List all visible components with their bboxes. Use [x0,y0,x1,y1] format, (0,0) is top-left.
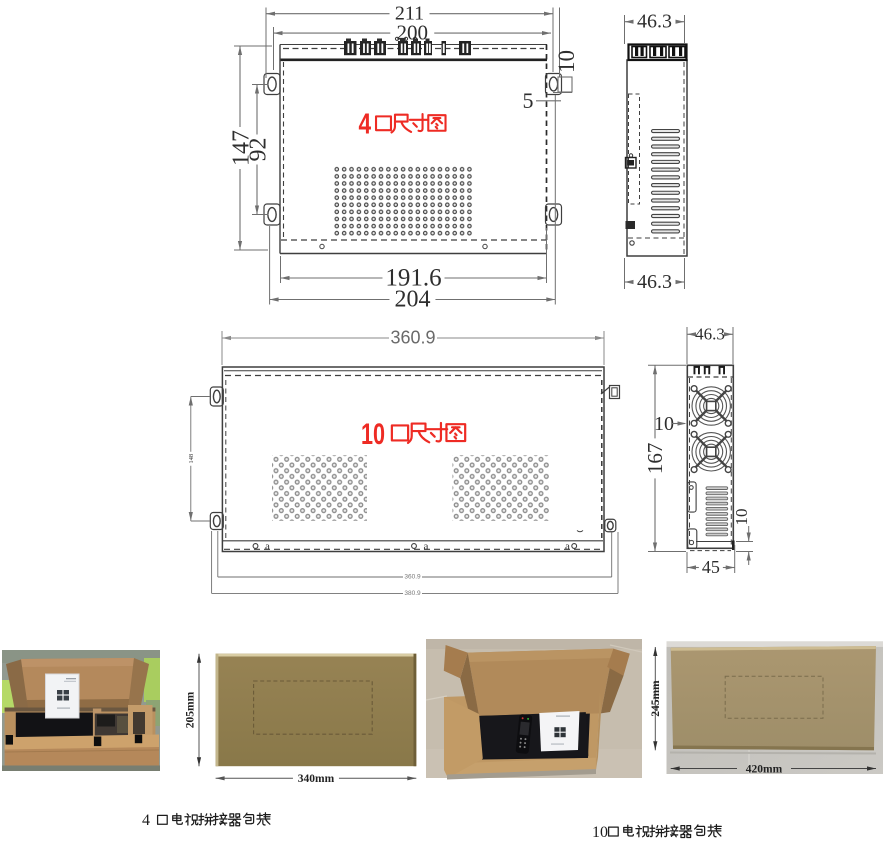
svg-text:10: 10 [654,413,674,435]
svg-text:4: 4 [359,107,372,140]
svg-text:10: 10 [732,509,751,526]
svg-text:200: 200 [397,20,429,44]
svg-text:420mm: 420mm [746,764,783,776]
svg-text:5: 5 [523,88,534,113]
svg-text:46.3: 46.3 [637,271,672,293]
svg-text:a: a [565,541,570,553]
svg-text:10: 10 [554,50,579,73]
svg-text:360.9: 360.9 [390,327,435,347]
svg-text:46.3: 46.3 [695,324,725,343]
svg-text:340mm: 340mm [298,773,335,785]
svg-text:204: 204 [394,287,430,313]
svg-text:a: a [265,541,270,553]
svg-text:a: a [424,541,429,553]
svg-text:4: 4 [142,812,150,829]
svg-text:10: 10 [592,824,608,841]
svg-text:205mm: 205mm [185,691,197,728]
svg-text:45: 45 [702,557,720,577]
svg-text:10: 10 [361,416,385,450]
svg-text:245mm: 245mm [650,680,662,717]
svg-text:360.9: 360.9 [404,574,421,581]
svg-text:92: 92 [245,138,271,162]
svg-text:148: 148 [188,454,195,464]
svg-text:380.9: 380.9 [404,590,421,597]
svg-text:167: 167 [643,443,667,475]
svg-text:46.3: 46.3 [637,11,672,33]
